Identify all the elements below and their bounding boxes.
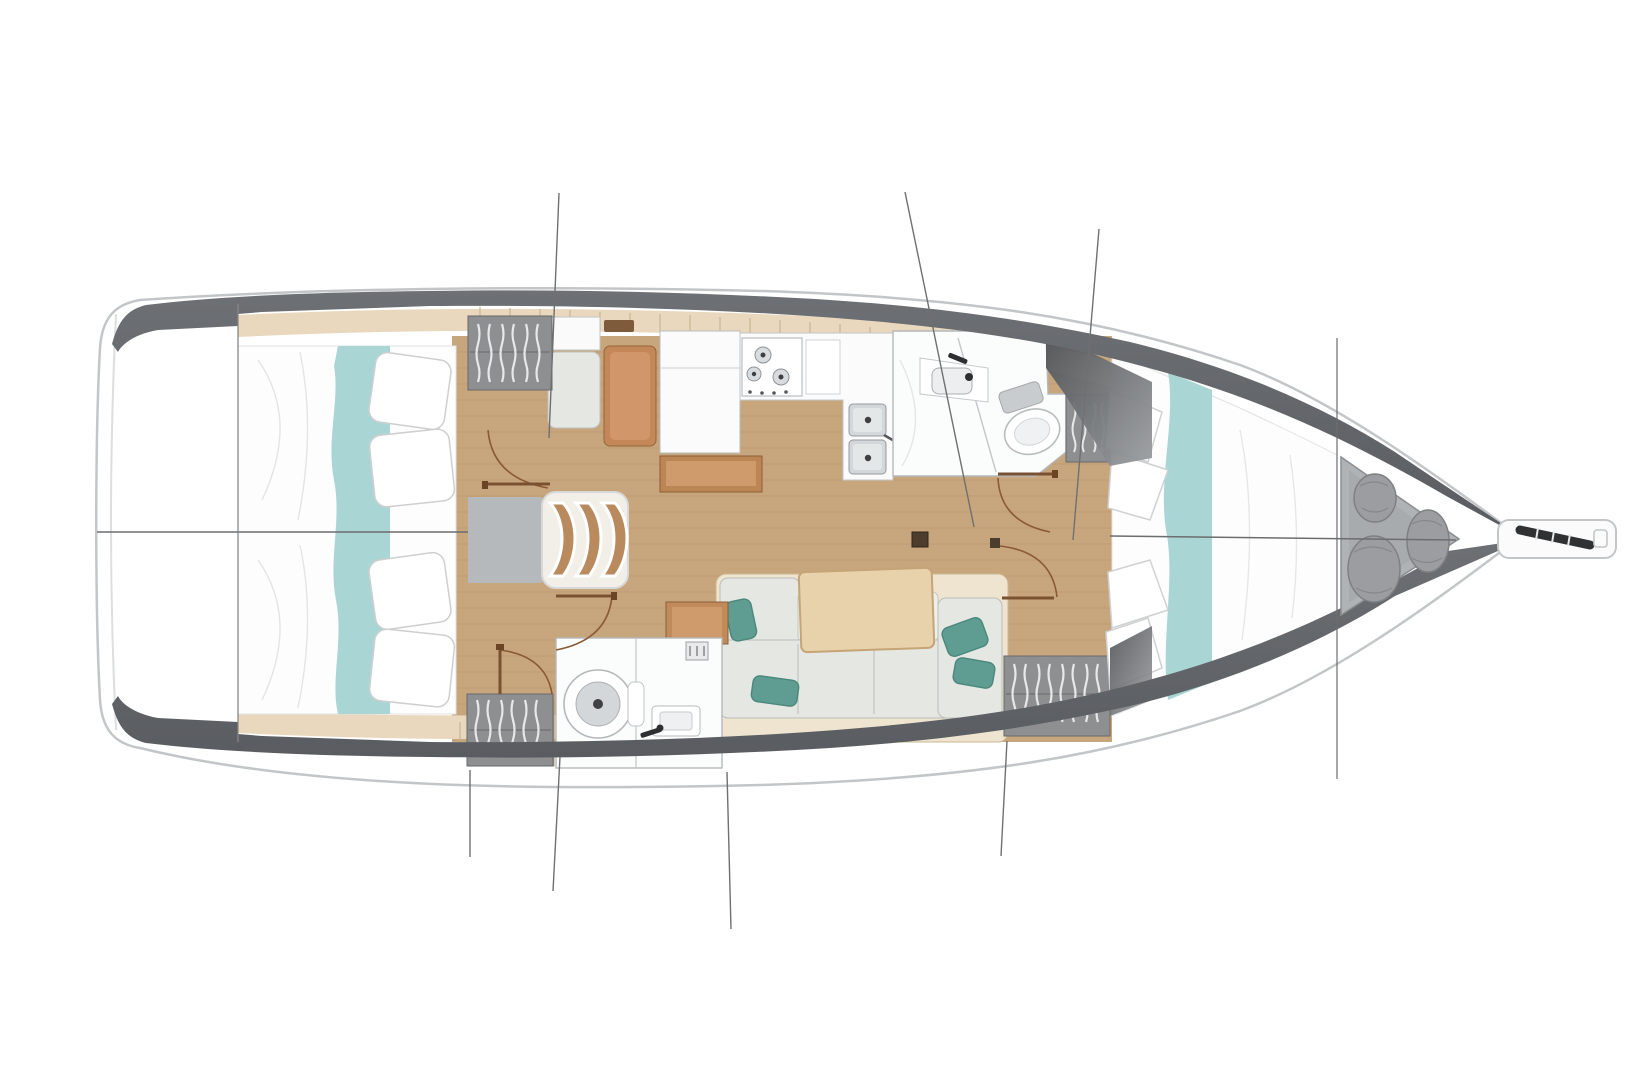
locker-box <box>552 317 600 350</box>
head-forward <box>893 331 1066 476</box>
settee-right-cushion <box>938 598 1002 718</box>
companionway <box>468 492 628 588</box>
engine-box <box>468 497 542 583</box>
bowsprit <box>1498 520 1616 558</box>
instrument-panel-2 <box>604 320 634 332</box>
galley-cabinet <box>806 340 840 394</box>
locker-aft-port <box>468 316 552 390</box>
companionway-steps <box>550 503 627 576</box>
chart-table <box>660 331 740 453</box>
stove <box>742 338 802 396</box>
nav-seat <box>548 352 600 428</box>
aft-cabins <box>238 346 456 714</box>
head-aft-shelf <box>686 642 708 660</box>
head-forward-room <box>893 331 1066 476</box>
yacht-layout-plan <box>0 0 1635 1080</box>
salon-table <box>799 568 935 653</box>
mast-step <box>912 532 928 547</box>
floorplan-page <box>0 0 1635 1080</box>
